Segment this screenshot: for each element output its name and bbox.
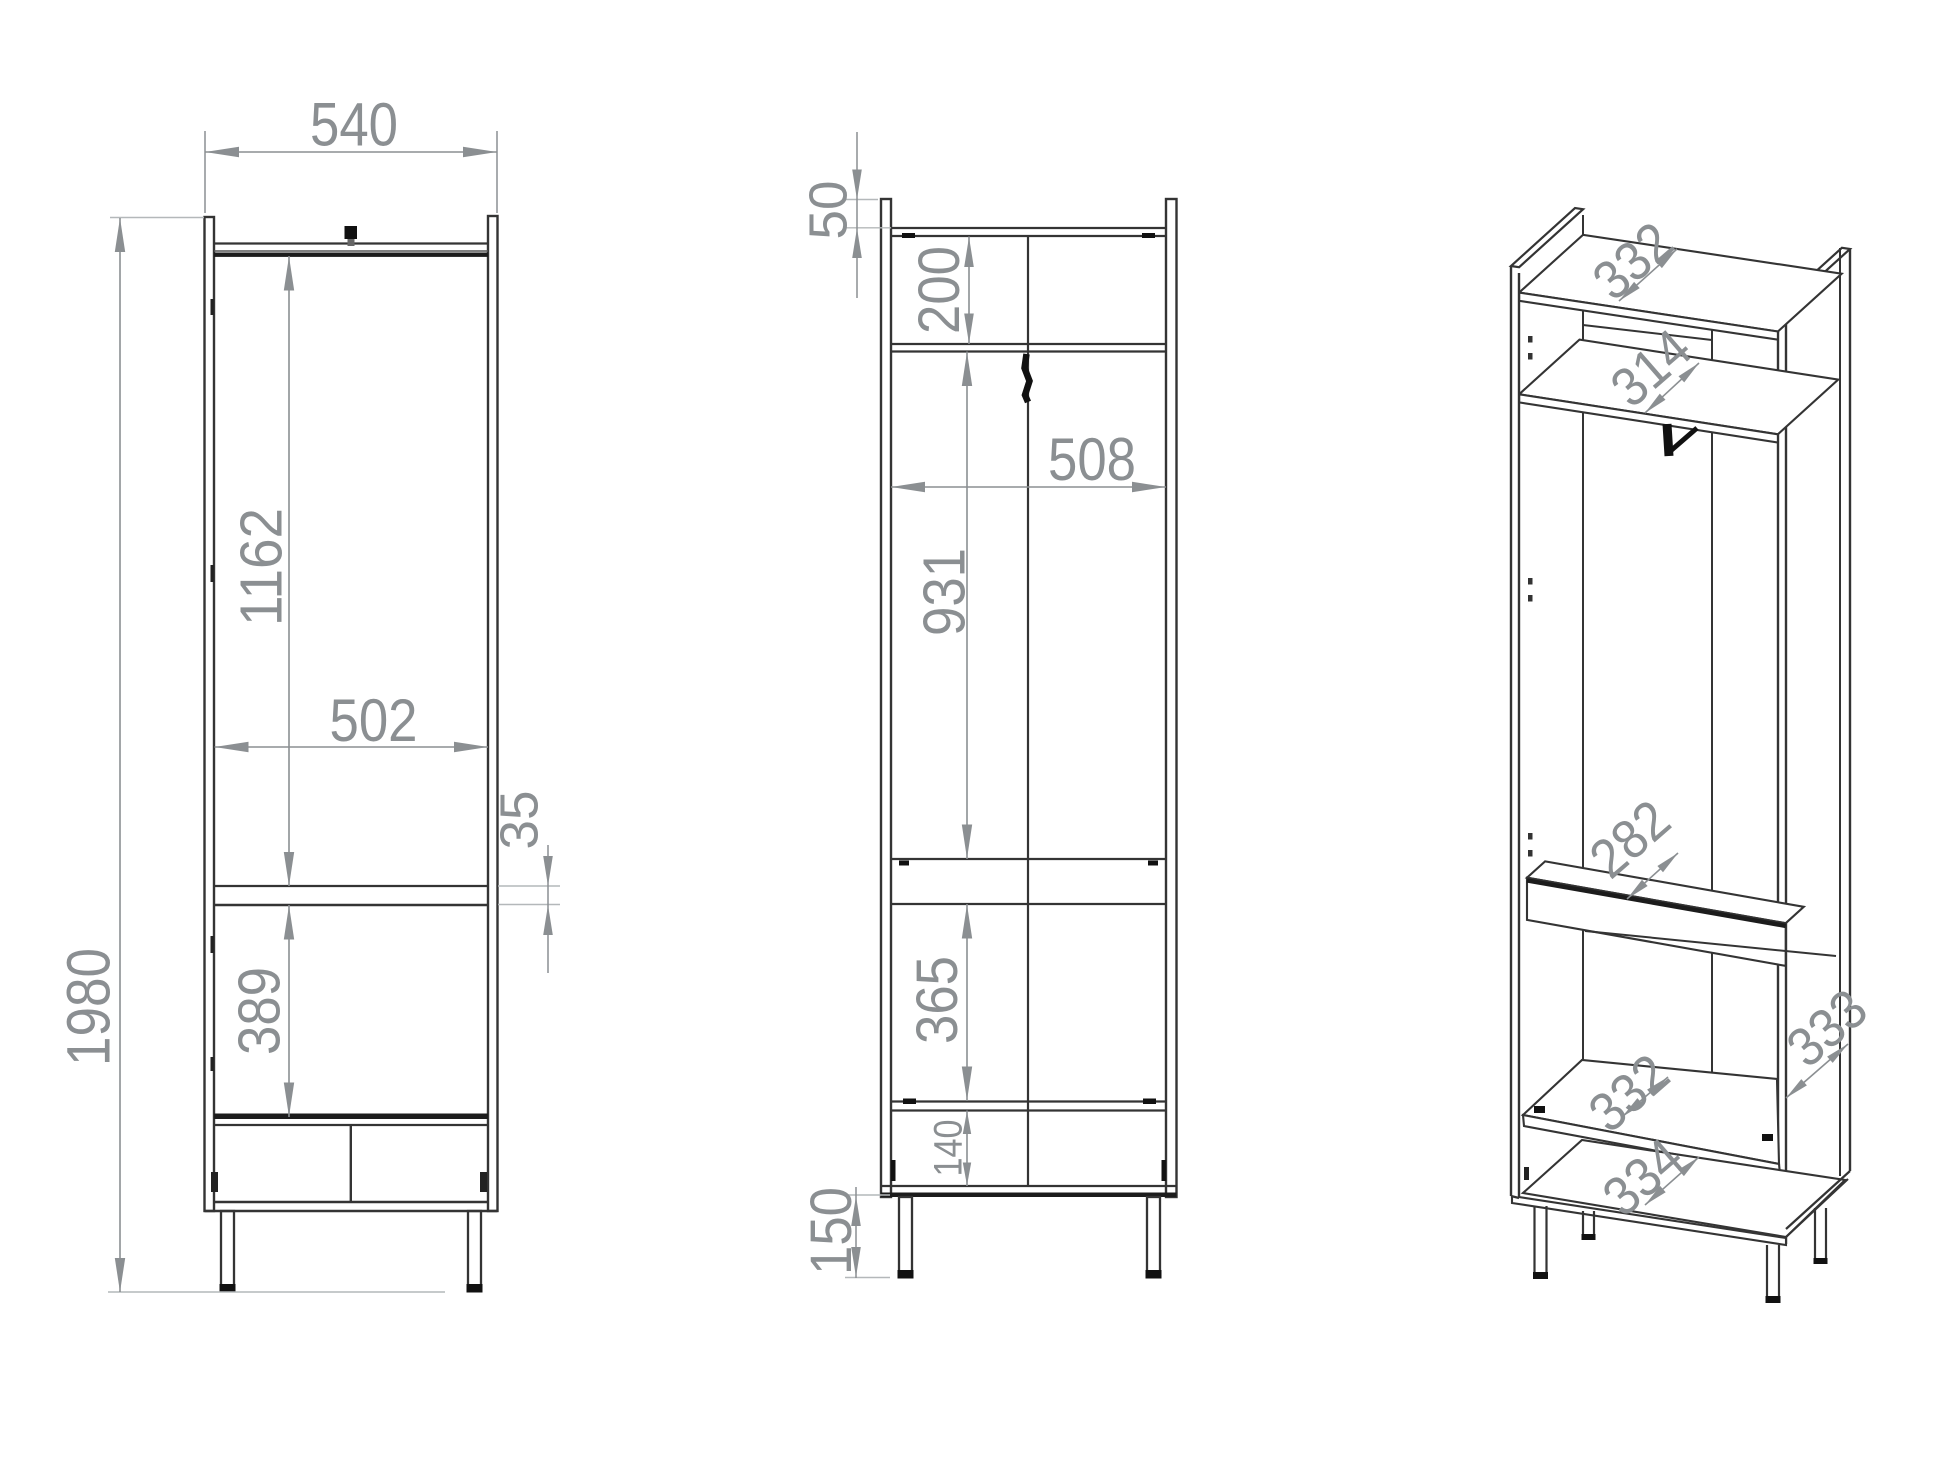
svg-text:35: 35 xyxy=(490,791,550,850)
svg-text:540: 540 xyxy=(310,90,398,158)
svg-text:1162: 1162 xyxy=(229,508,295,626)
svg-text:50: 50 xyxy=(799,181,859,240)
svg-text:200: 200 xyxy=(907,246,972,334)
svg-text:365: 365 xyxy=(905,956,970,1044)
svg-text:140: 140 xyxy=(927,1120,971,1177)
svg-text:931: 931 xyxy=(912,548,978,636)
svg-text:508: 508 xyxy=(1048,426,1136,493)
svg-text:502: 502 xyxy=(330,687,418,754)
svg-text:389: 389 xyxy=(227,967,293,1055)
svg-text:150: 150 xyxy=(799,1187,864,1275)
svg-text:1980: 1980 xyxy=(54,948,122,1066)
